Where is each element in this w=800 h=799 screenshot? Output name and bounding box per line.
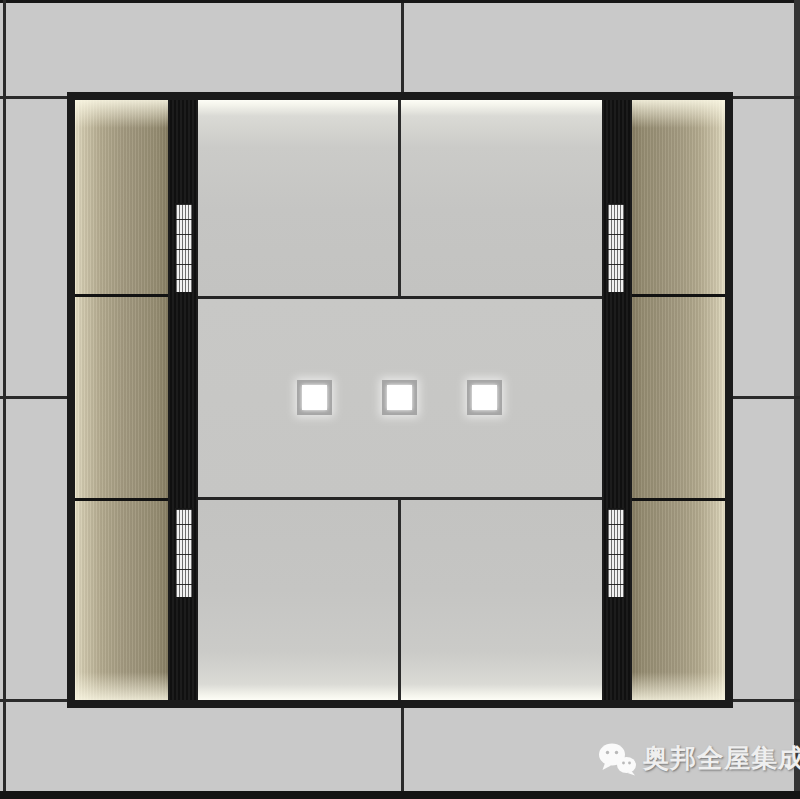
cove-light-glow xyxy=(75,672,168,700)
vent-grille xyxy=(175,508,193,598)
wood-panel-column-right xyxy=(632,100,725,700)
vent-grille xyxy=(607,508,625,598)
right-edge-line xyxy=(794,0,800,799)
left-margin-divider-1 xyxy=(0,96,75,99)
cove-light-glow xyxy=(75,100,168,128)
wood-panel xyxy=(632,297,725,498)
panel-seam-line xyxy=(398,100,401,296)
right-margin-divider-2 xyxy=(725,396,800,399)
wood-panel xyxy=(75,501,168,700)
square-downlight xyxy=(467,380,502,415)
bottom-margin-divider xyxy=(401,708,404,791)
right-margin-divider-3 xyxy=(725,699,800,702)
panel-seam-line xyxy=(398,500,401,700)
downlight-lens xyxy=(387,385,412,410)
square-downlight xyxy=(297,380,332,415)
cove-light-glow xyxy=(632,672,725,700)
top-edge-line xyxy=(0,0,800,3)
right-margin-divider-1 xyxy=(725,96,800,99)
vent-grille xyxy=(175,203,193,293)
downlight-lens xyxy=(302,385,327,410)
watermark-text: 奥邦全屋集成顶 xyxy=(643,741,800,776)
left-edge-line xyxy=(3,0,6,799)
wood-panel xyxy=(75,100,168,294)
vent-grille xyxy=(607,203,625,293)
left-margin-divider-3 xyxy=(0,699,75,702)
cove-light-glow xyxy=(632,100,725,128)
top-margin-divider xyxy=(401,3,404,92)
left-margin-divider-2 xyxy=(0,396,75,399)
vent-strip-right xyxy=(602,100,632,700)
panel-seam-line xyxy=(198,296,602,299)
wood-panel-column-left xyxy=(75,100,168,700)
ceiling-panel-bottom-section xyxy=(198,500,602,700)
wechat-icon xyxy=(597,742,637,776)
ceiling-panel-top-section xyxy=(198,100,602,296)
ceiling-render: 奥邦全屋集成顶 xyxy=(0,0,800,799)
watermark: 奥邦全屋集成顶 xyxy=(597,741,800,776)
downlight-lens xyxy=(472,385,497,410)
bottom-edge-band xyxy=(0,791,800,799)
wood-panel xyxy=(75,297,168,498)
wood-panel xyxy=(632,501,725,700)
vent-strip-left xyxy=(168,100,198,700)
wood-panel xyxy=(632,100,725,294)
square-downlight xyxy=(382,380,417,415)
panel-seam-line xyxy=(198,497,602,500)
